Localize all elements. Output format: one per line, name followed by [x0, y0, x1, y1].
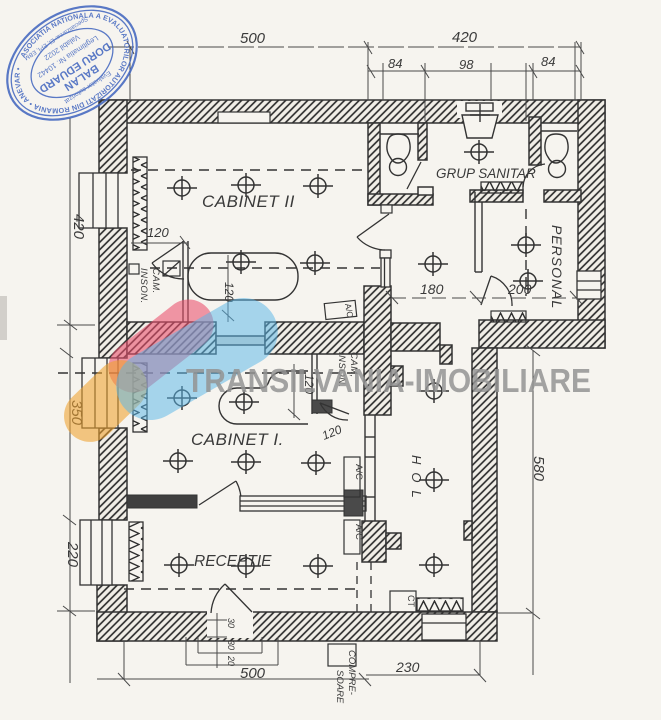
svg-text:180: 180: [420, 281, 444, 297]
svg-text:CT: CT: [406, 595, 416, 607]
svg-text:CABINET I.: CABINET I.: [191, 430, 284, 449]
svg-text:PERSONAL: PERSONAL: [549, 225, 565, 309]
svg-text:500: 500: [240, 30, 266, 47]
svg-text:30: 30: [226, 618, 236, 628]
svg-text:CAM.: CAM.: [150, 268, 161, 294]
svg-text:420: 420: [70, 214, 87, 240]
svg-text:500: 500: [240, 665, 266, 682]
svg-text:220: 220: [64, 541, 81, 568]
svg-text:20: 20: [226, 655, 236, 666]
svg-text:98: 98: [459, 57, 474, 72]
svg-text:84: 84: [541, 54, 555, 69]
svg-text:420: 420: [452, 29, 478, 46]
svg-text:30: 30: [226, 640, 236, 650]
svg-text:SOARE: SOARE: [334, 670, 345, 704]
svg-text:CABINET II: CABINET II: [202, 192, 295, 211]
svg-text:200: 200: [507, 281, 532, 297]
svg-text:84: 84: [388, 56, 402, 71]
svg-text:GRUP SANITAR: GRUP SANITAR: [436, 166, 536, 181]
svg-text:TRANSILVANIA-IMOBILIARE: TRANSILVANIA-IMOBILIARE: [186, 362, 591, 399]
svg-text:580: 580: [530, 456, 547, 482]
svg-text:INSON.: INSON.: [138, 268, 149, 304]
svg-text:HOL: HOL: [409, 455, 424, 506]
svg-text:120: 120: [222, 282, 236, 302]
svg-text:RECEPTIE: RECEPTIE: [194, 553, 272, 570]
svg-text:COMPRE-: COMPRE-: [346, 650, 357, 695]
svg-text:A/C: A/C: [353, 524, 364, 540]
svg-text:A/C: A/C: [353, 464, 364, 480]
svg-text:120: 120: [147, 225, 169, 240]
svg-text:230: 230: [395, 659, 420, 675]
